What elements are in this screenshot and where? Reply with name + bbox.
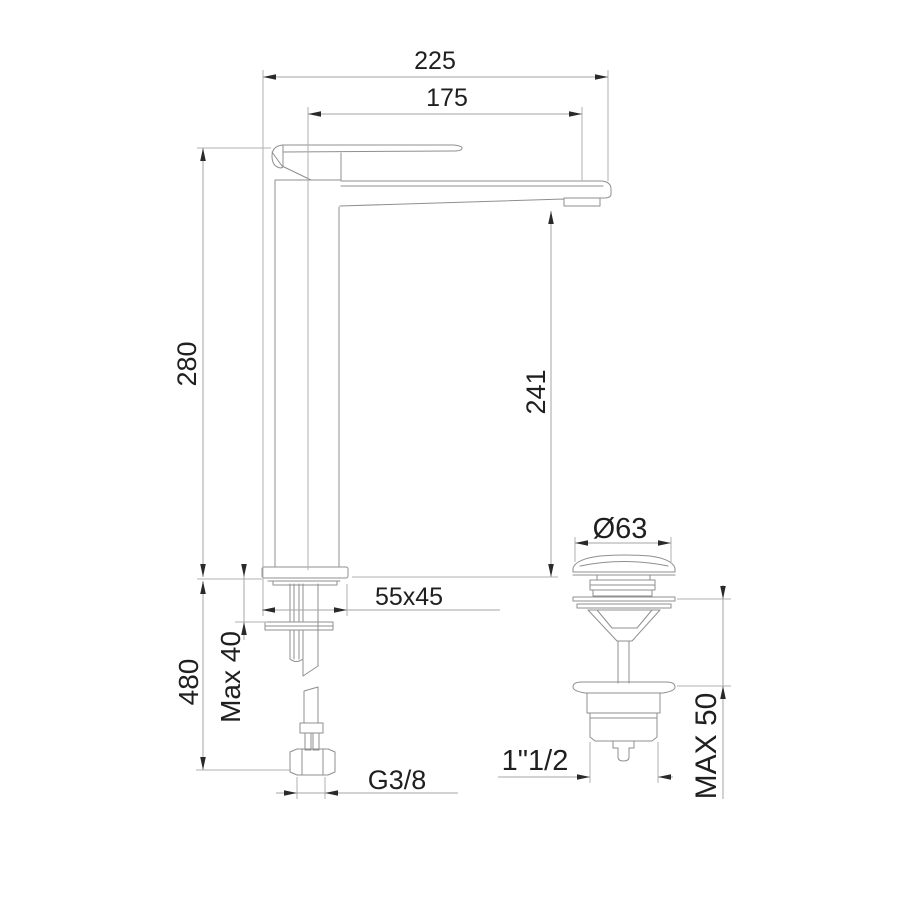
base-plate-lower [268,581,340,585]
arrow-left-icon [262,607,275,613]
dim-spout-outlet-height-label: 241 [521,369,551,414]
technical-drawing-canvas: 225 175 280 241 [0,0,900,899]
dim-base-plate: 55x45 [262,583,500,616]
arrow-down-icon [548,564,554,577]
neck-edge [311,153,341,180]
hose-rib-left [305,733,311,750]
handle-lever [283,145,462,152]
arrow-right-icon [577,774,590,780]
dim-deck-thickness-max: Max 40 [215,564,267,723]
faucet-dimension-drawing: 225 175 280 241 [0,0,900,899]
dim-spout-outlet-height: 241 [352,211,558,577]
dim-drain-deck-max-label: MAX 50 [690,693,723,800]
drain-pin [613,741,634,761]
arrow-right-icon [595,74,608,80]
dim-drain-thread: 1"1/2 [498,742,673,783]
dim-base-plate-label: 55x45 [375,583,443,611]
mounting-shank [290,584,303,662]
spout-outline [341,181,611,198]
drain-assembly-view [573,555,675,761]
arrow-left-icon [575,540,588,546]
spout-underside-aerator [340,198,600,206]
arrow-down-icon [720,586,726,599]
dimensions: 225 175 280 241 [172,47,731,799]
arrow-left-icon [308,111,321,117]
dim-supply-thread-label: G3/8 [368,765,427,795]
arrow-down-icon [200,757,206,770]
base-plate [262,567,348,578]
drain-top-flange [573,597,675,601]
dim-drain-thread-label: 1"1/2 [502,745,569,777]
hose-collar [300,723,323,733]
hose-hex-nut [290,749,335,775]
dim-depth-overall-label: 225 [414,47,456,75]
arrow-left-icon [325,790,338,796]
arrow-right-icon [658,540,671,546]
arrow-right-icon [334,607,347,613]
drain-stem [618,641,629,683]
drain-flange-disc [577,604,671,608]
drain-cap-dome [573,555,675,575]
dim-height-above-deck-label: 280 [172,341,202,386]
arrow-up-icon [548,211,554,224]
arrow-down-icon [200,564,206,577]
arrow-up-icon [200,148,206,161]
dim-spout-reach: 175 [308,84,582,570]
hose-rib-right [313,733,319,750]
dim-supply-thread: G3/8 [276,765,458,799]
drain-lower-flange [573,682,675,693]
dim-drain-cap-diameter-label: Ø63 [593,513,648,545]
head-chamfer [272,152,311,180]
dim-drain-deck-max: MAX 50 [677,585,731,799]
arrow-left-icon [658,774,671,780]
arrow-left-icon [263,74,276,80]
arrow-up-icon [200,581,206,594]
dim-spout-reach-label: 175 [426,84,468,112]
dim-height-above-deck: 280 [172,148,271,579]
faucet-side-view [262,145,611,775]
arrow-right-icon [284,790,297,796]
dim-deck-thickness-max-label: Max 40 [215,631,246,723]
dim-overall-height-label: 480 [173,659,204,706]
supply-hose-lower [304,687,318,723]
dim-depth-overall: 225 [263,47,608,616]
arrow-right-icon [569,111,582,117]
arrow-down-icon [241,564,247,577]
drain-cone [588,610,660,641]
drain-body [587,693,660,741]
drain-cap-ribs [590,575,655,596]
